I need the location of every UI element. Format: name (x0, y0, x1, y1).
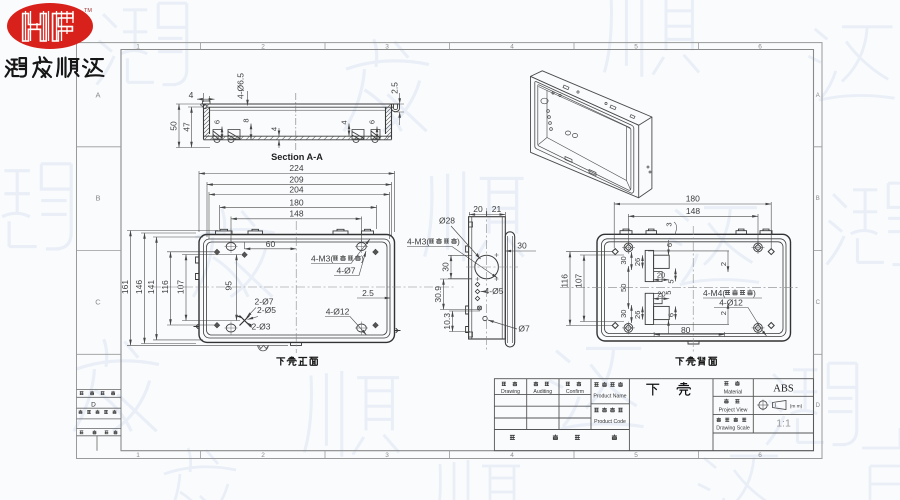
svg-text:2.5: 2.5 (389, 82, 399, 94)
svg-text:5: 5 (634, 43, 638, 50)
svg-text:4-M4(: 4-M4( (703, 288, 725, 298)
svg-text:Section A-A: Section A-A (271, 152, 323, 162)
svg-text:6: 6 (758, 452, 762, 459)
svg-text:50: 50 (169, 121, 179, 131)
svg-text:8: 8 (242, 118, 251, 122)
svg-text:4: 4 (270, 127, 279, 131)
svg-text:5: 5 (634, 452, 638, 459)
svg-text:2: 2 (261, 43, 265, 50)
svg-text:2: 2 (261, 452, 265, 459)
svg-text:Ø7: Ø7 (518, 324, 530, 334)
svg-text:26: 26 (633, 258, 642, 266)
svg-text:4-Ø7: 4-Ø7 (337, 266, 356, 276)
svg-text:161: 161 (120, 280, 130, 294)
svg-text:2-Ø5: 2-Ø5 (257, 305, 276, 315)
svg-text:116: 116 (160, 280, 170, 294)
svg-text:60: 60 (266, 239, 276, 249)
svg-text:30.9: 30.9 (433, 286, 443, 303)
svg-text:3: 3 (385, 43, 389, 50)
svg-text:Drawing: Drawing (501, 389, 520, 395)
svg-text:4: 4 (340, 120, 349, 124)
svg-text:2-Ø3: 2-Ø3 (252, 322, 271, 332)
svg-text:ABS: ABS (773, 384, 794, 395)
svg-text:50: 50 (619, 284, 628, 292)
svg-text:2: 2 (719, 311, 728, 315)
svg-text:20: 20 (473, 204, 483, 214)
svg-text:C: C (816, 300, 821, 306)
svg-text:A: A (95, 91, 100, 100)
svg-text:Material: Material (724, 390, 742, 396)
svg-text:4-M3(: 4-M3( (311, 254, 333, 264)
svg-text:4: 4 (510, 43, 514, 50)
svg-text:21: 21 (492, 204, 502, 214)
svg-text:4-Ø12: 4-Ø12 (719, 298, 743, 308)
svg-text:6: 6 (213, 120, 222, 124)
svg-text:4-Ø12: 4-Ø12 (326, 307, 350, 317)
svg-text:TM: TM (84, 8, 92, 14)
svg-text:4-Ø6.5: 4-Ø6.5 (236, 73, 246, 99)
svg-text:20: 20 (657, 271, 665, 280)
svg-text:6: 6 (665, 243, 674, 247)
svg-text:): ) (457, 237, 460, 247)
svg-text:3: 3 (665, 222, 674, 226)
svg-text:107: 107 (574, 273, 584, 287)
svg-text:146: 146 (134, 280, 144, 294)
svg-text:30: 30 (619, 310, 628, 318)
svg-text:30: 30 (517, 241, 527, 251)
svg-text:Drawing Scale: Drawing Scale (716, 426, 750, 432)
svg-text:209: 209 (289, 174, 303, 184)
svg-text:30: 30 (441, 262, 451, 272)
svg-text:180: 180 (289, 197, 303, 207)
svg-text:224: 224 (289, 163, 303, 173)
svg-text:4-M3(: 4-M3( (407, 237, 429, 247)
svg-text:80: 80 (681, 325, 691, 335)
svg-text:6: 6 (758, 43, 762, 50)
svg-text:): ) (753, 288, 756, 298)
svg-text:Auditing: Auditing (533, 389, 552, 395)
svg-text:47: 47 (181, 122, 191, 132)
svg-text:4: 4 (189, 90, 194, 100)
svg-text:Product Name: Product Name (593, 394, 626, 400)
svg-text:B: B (816, 196, 820, 202)
svg-text:D: D (816, 403, 821, 409)
svg-text:26: 26 (633, 311, 642, 319)
svg-text:(m m): (m m) (790, 404, 803, 410)
svg-text:6: 6 (666, 313, 675, 317)
svg-text:1: 1 (136, 43, 140, 50)
svg-text:204: 204 (289, 184, 303, 194)
svg-text:A: A (816, 93, 820, 99)
svg-text:5: 5 (666, 280, 675, 284)
svg-text:20: 20 (657, 290, 665, 299)
svg-text:Confirm: Confirm (566, 389, 584, 395)
svg-text:6: 6 (368, 120, 377, 124)
svg-text:2: 2 (719, 262, 728, 266)
svg-text:148: 148 (686, 206, 700, 216)
svg-text:180: 180 (686, 194, 700, 204)
svg-text:141: 141 (146, 280, 156, 294)
svg-text:Project View: Project View (719, 407, 748, 413)
svg-text:Product Code: Product Code (594, 419, 626, 425)
svg-text:148: 148 (289, 209, 303, 219)
svg-text:C: C (95, 298, 101, 307)
svg-text:4-Ø5: 4-Ø5 (485, 286, 504, 296)
svg-text:10.3: 10.3 (442, 313, 452, 330)
svg-text:30: 30 (619, 256, 628, 264)
svg-text:D: D (91, 402, 96, 409)
svg-text:116: 116 (560, 274, 570, 288)
svg-text:Ø28: Ø28 (439, 216, 455, 226)
svg-text:1:1: 1:1 (776, 418, 791, 430)
svg-text:3: 3 (385, 452, 389, 459)
svg-text:1: 1 (136, 452, 140, 459)
svg-text:2.5: 2.5 (362, 288, 374, 298)
svg-text:B: B (95, 194, 100, 203)
svg-text:107: 107 (176, 280, 186, 294)
svg-text:4: 4 (510, 452, 514, 459)
svg-text:95: 95 (224, 281, 234, 291)
